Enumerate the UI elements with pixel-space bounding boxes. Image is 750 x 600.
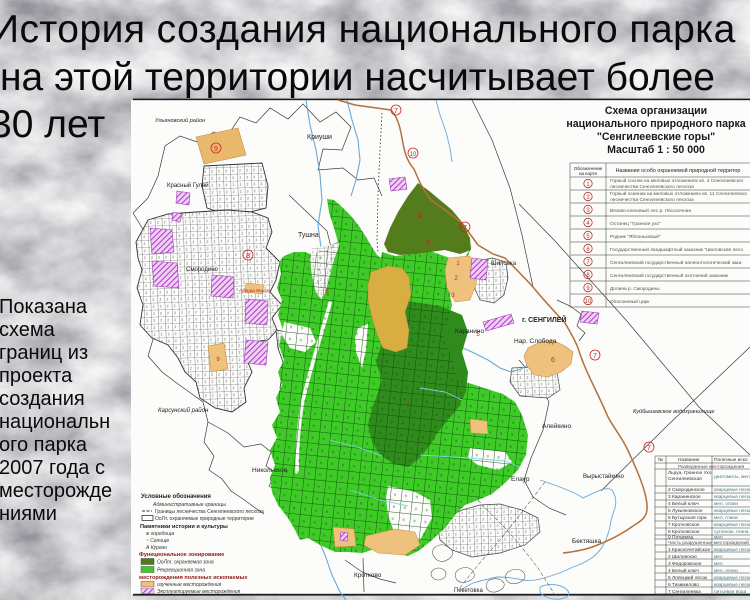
svg-text:5 Лукьяновское: 5 Лукьяновское	[668, 508, 703, 514]
svg-text:Смородино: Смородино	[186, 267, 219, 273]
svg-text:Ульяновский район: Ульяновский район	[154, 117, 205, 124]
svg-text:Разведанные месторождения: Разведанные месторождения	[678, 464, 745, 470]
svg-text:Рекреационная зона: Рекреационная зона	[157, 568, 205, 574]
svg-text:Карсунский район: Карсунский район	[158, 407, 209, 414]
svg-text:Часть разрушенных месторождени: Часть разрушенных месторождений	[668, 539, 749, 546]
svg-text:Горный сосняк на меловых отлож: Горный сосняк на меловых отложениях кв. …	[610, 177, 744, 184]
svg-text:6 Тизимилово: 6 Тизимилово	[668, 582, 699, 588]
svg-text:Останец "Гранное ухо": Останец "Гранное ухо"	[610, 221, 661, 227]
svg-text:"Сенгилеевские горы": "Сенгилеевские горы"	[597, 131, 715, 143]
svg-text:Аренда Вишня: Аренда Вишня	[239, 288, 271, 293]
svg-text:4 Белый ключ: 4 Белый ключ	[668, 500, 699, 507]
svg-text:проекта: проекта	[0, 365, 73, 387]
svg-text:История создания национальног: История создания национального парка	[0, 8, 736, 51]
svg-text:Долина р. Смородины: Долина р. Смородины	[610, 286, 660, 292]
svg-text:мел, глина: мел, глина	[714, 516, 738, 521]
svg-text:национального природного парка: национального природного парка	[566, 118, 745, 130]
svg-text:6: 6	[551, 357, 555, 364]
svg-text:10: 10	[410, 152, 417, 158]
svg-text:мел: мел	[714, 555, 723, 560]
svg-text:ОоЛт. охраняемые природные тер: ОоЛт. охраняемые природные территории	[155, 516, 254, 522]
svg-text:6 Бутырская гора: 6 Бутырская гора	[668, 515, 707, 521]
svg-text:ого парка: ого парка	[0, 434, 88, 456]
svg-text:Сенгилеевская: Сенгилеевская	[668, 476, 702, 482]
svg-text:2 Шиловское: 2 Шиловское	[668, 554, 697, 560]
svg-text:кварцевые пески: кварцевые пески	[714, 523, 750, 528]
svg-text:5 Лопецкий лесок: 5 Лопецкий лесок	[668, 574, 708, 581]
svg-text:Государственный ландшафтный за: Государственный ландшафтный заказник "Ши…	[610, 246, 743, 253]
svg-text:мел, опоки: мел, опоки	[714, 502, 738, 507]
svg-text:Условные обозначения: Условные обозначения	[141, 493, 211, 500]
svg-text:создания: создания	[0, 388, 85, 410]
svg-text:ОоЛт. охраняемая зона: ОоЛт. охраняемая зона	[157, 560, 214, 566]
svg-text:Памятники истории и культуры: Памятники истории и культуры	[140, 524, 228, 530]
svg-text:кварцевые пески: кварцевые пески	[714, 509, 750, 514]
svg-text:7 Кротковское: 7 Кротковское	[668, 522, 700, 528]
svg-text:Границы лесничества Сенгилеевс: Границы лесничества Сенгилеевского лесхо…	[155, 509, 264, 515]
svg-text:Оползневый цирк: Оползневый цирк	[610, 298, 650, 305]
svg-text:8 Кротковское: 8 Кротковское	[668, 529, 700, 535]
svg-text:2007 года с: 2007 года с	[0, 457, 105, 479]
svg-text:на этой территории насчитывает: на этой территории насчитывает более	[0, 56, 715, 99]
svg-text:А Курган: А Курган	[145, 545, 167, 551]
svg-text:Эксплуатируемые месторождения: Эксплуатируемые месторождения	[157, 589, 241, 595]
svg-text:4: 4	[426, 240, 430, 247]
svg-text:Родник "Яблоньковый": Родник "Яблоньковый"	[610, 233, 661, 240]
svg-text:Горный осинник на меловых отло: Горный осинник на меловых отложениях кв.…	[610, 190, 747, 197]
svg-text:30 лет: 30 лет	[0, 103, 105, 146]
svg-text:Куйбышевское водохранилище: Куйбышевское водохранилище	[633, 408, 715, 415]
svg-text:суглинок, глина: суглинок, глина	[714, 530, 749, 535]
svg-text:Схема организации: Схема организации	[605, 105, 707, 117]
svg-text:Льруа, Гранное Ухо: Льруа, Гранное Ухо	[668, 470, 712, 476]
svg-text:кварцевые пески: кварцевые пески	[714, 576, 750, 581]
svg-text:национальн: национальн	[0, 411, 110, 433]
svg-text:7 Сенгилеевка: 7 Сенгилеевка	[668, 589, 701, 595]
svg-text:Никольское: Никольское	[252, 467, 288, 474]
svg-text:границ из: границ из	[0, 342, 88, 364]
svg-text:Название: Название	[678, 457, 700, 463]
svg-text:кварцевые пески: кварцевые пески	[714, 548, 750, 553]
svg-text:9 Потапиха: 9 Потапиха	[668, 535, 693, 541]
svg-text:изученные месторождения: изученные месторождения	[157, 582, 222, 588]
svg-text:ниями: ниями	[0, 503, 57, 525]
svg-text:на карте: на карте	[579, 171, 598, 176]
svg-text:г. СЕНГИЛЕЙ: г. СЕНГИЛЕЙ	[522, 315, 567, 324]
svg-text:Вязово-кленовый лес р. Лесосеч: Вязово-кленовый лес р. Лесосечная	[610, 207, 691, 214]
svg-text:3 Федоровское: 3 Федоровское	[668, 561, 702, 567]
svg-text:Бектяшка: Бектяшка	[572, 538, 601, 545]
svg-text:10: 10	[585, 299, 592, 305]
svg-text:кварцевые пески: кварцевые пески	[714, 583, 750, 588]
svg-text:Красный Гуляй: Красный Гуляй	[167, 182, 209, 189]
svg-text:Административные границы: Административные границы	[152, 502, 226, 508]
svg-text:Алейкино: Алейкино	[542, 422, 571, 430]
svg-text:месторожде: месторожде	[0, 480, 112, 502]
svg-text:месторождения полезных ископае: месторождения полезных ископаемых	[139, 575, 248, 581]
svg-text:Каранино: Каранино	[455, 328, 484, 335]
svg-text:Названия особо охраняемой прир: Названия особо охраняемой природной терр…	[616, 167, 741, 174]
svg-text:мел, опоки: мел, опоки	[714, 569, 738, 574]
svg-text:лесничества Сенгилеевского лес: лесничества Сенгилеевского лесхоза	[610, 184, 694, 190]
svg-text:1 Красночетайское: 1 Красночетайское	[668, 546, 710, 553]
svg-text:Пекетовка: Пекетовка	[454, 588, 483, 594]
svg-text:~ Селище: ~ Селище	[146, 538, 169, 544]
svg-text:4: 4	[418, 211, 423, 220]
svg-text:ж городища: ж городища	[145, 531, 174, 537]
svg-text:9: 9	[214, 146, 218, 153]
svg-text:Показана: Показана	[0, 296, 88, 318]
svg-text:мел: мел	[714, 562, 723, 567]
svg-text:3 Каранинское: 3 Каранинское	[668, 494, 701, 500]
svg-text:Шиловка: Шиловка	[491, 261, 517, 267]
svg-text:Елаур: Елаур	[511, 476, 530, 483]
svg-text:Криуши: Криуши	[307, 134, 332, 141]
svg-text:Сенгилеевский государственный: Сенгилеевский государственный палеонтоло…	[610, 259, 742, 266]
svg-text:Полезные иско: Полезные иско	[714, 457, 748, 463]
svg-text:7: 7	[394, 108, 398, 115]
svg-text:диатомиты, мел: диатомиты, мел	[714, 475, 750, 480]
svg-text:8: 8	[246, 253, 250, 260]
svg-text:мел: мел	[714, 536, 723, 541]
svg-text:лесничества Сенгилеевского лес: лесничества Сенгилеевского лесхоза	[610, 197, 694, 203]
svg-text:кварцевые пески: кварцевые пески	[714, 488, 750, 493]
svg-text:Кротково: Кротково	[354, 572, 382, 579]
svg-text:кварцевые пески: кварцевые пески	[714, 495, 750, 500]
svg-text:№: №	[658, 457, 663, 463]
svg-text:7: 7	[647, 445, 651, 452]
svg-text:Нар. Слобода: Нар. Слобода	[514, 337, 557, 345]
svg-text:Тушна: Тушна	[298, 232, 319, 239]
svg-text:Масштаб 1 : 50 000: Масштаб 1 : 50 000	[607, 144, 705, 156]
svg-text:Сенгилеевский государственный: Сенгилеевский государственный охотничий …	[610, 272, 729, 279]
svg-text:питьевая вода: питьевая вода	[714, 590, 747, 595]
svg-text:Функциональное зонирование: Функциональное зонирование	[139, 552, 224, 558]
svg-text:схема: схема	[0, 319, 56, 341]
svg-text:4 Белый ключ: 4 Белый ключ	[668, 567, 699, 574]
svg-text:2 Смородинское: 2 Смородинское	[668, 487, 705, 493]
svg-text:7: 7	[463, 225, 467, 232]
svg-text:7: 7	[593, 353, 597, 360]
svg-text:Вырыстайкино: Вырыстайкино	[583, 473, 625, 480]
